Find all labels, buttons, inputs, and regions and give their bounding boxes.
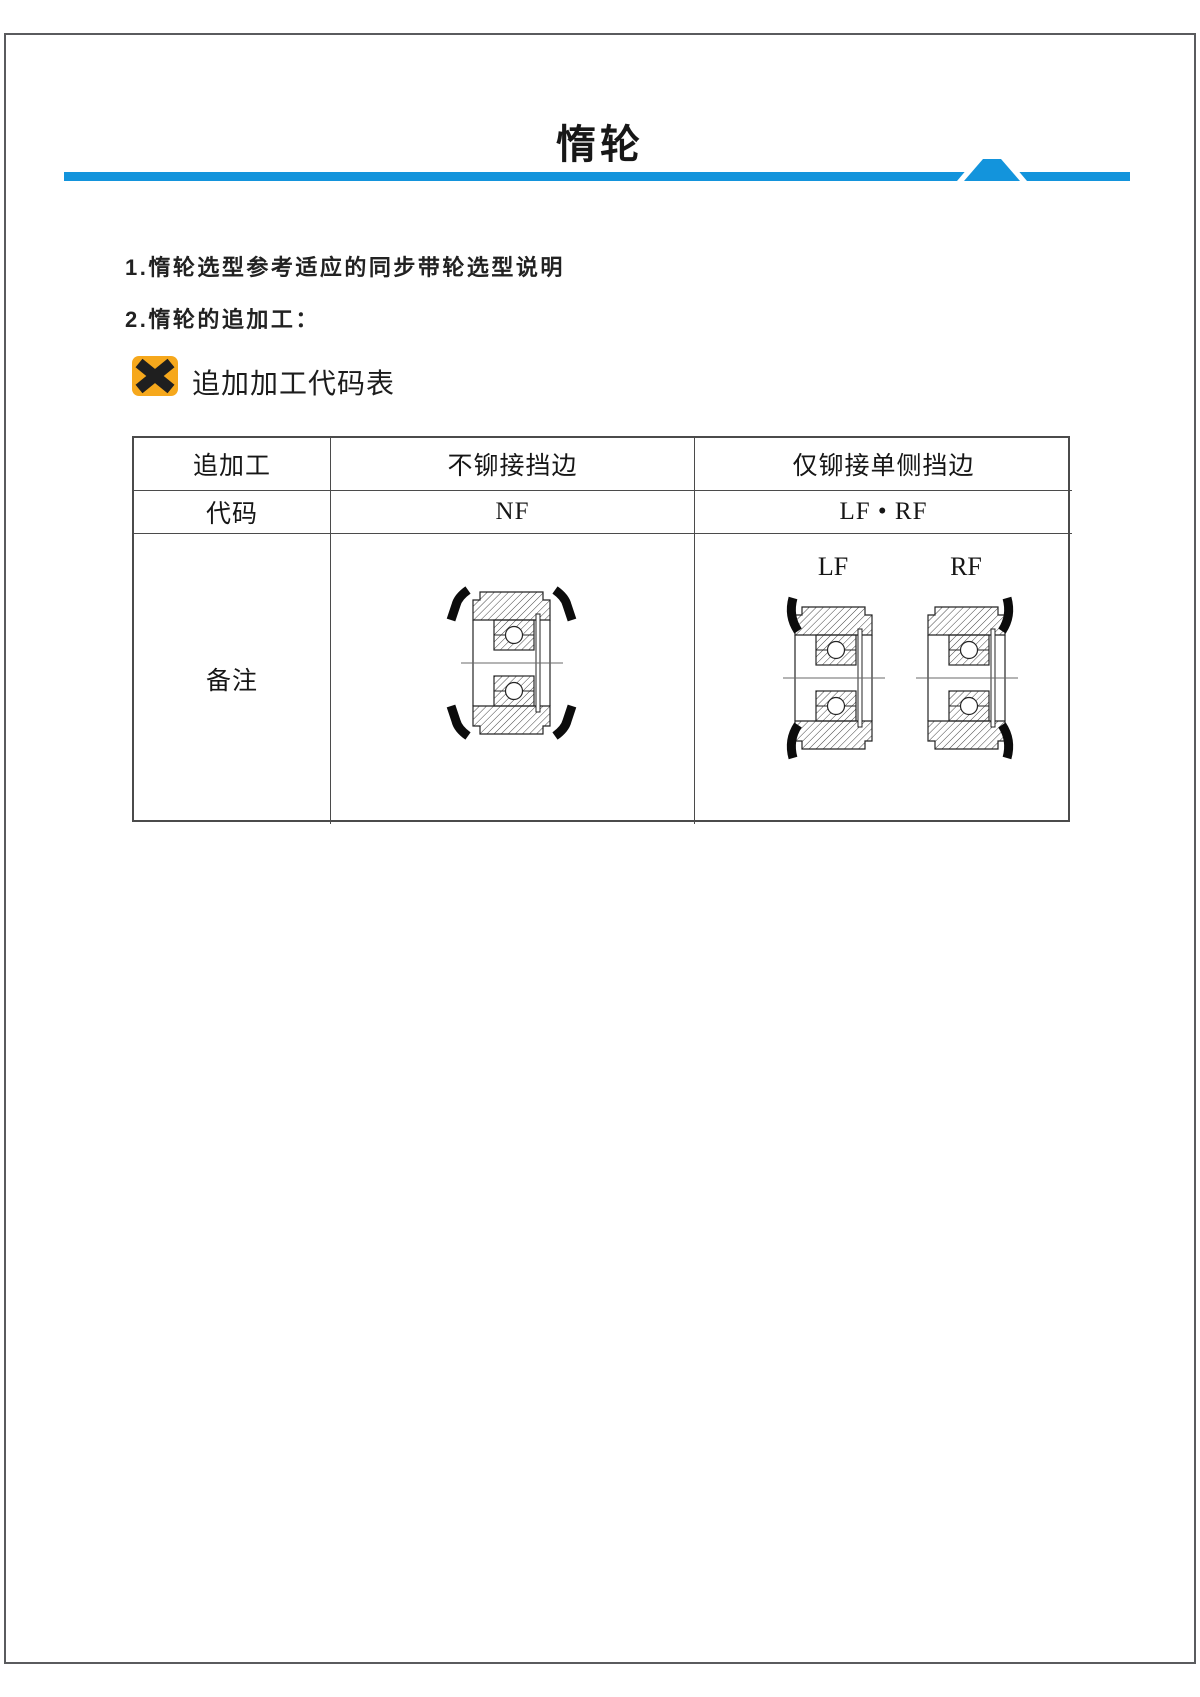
header-single-flange: 仅铆接单侧挡边 xyxy=(695,438,1072,491)
lf-diagram-label: LF xyxy=(803,552,863,582)
title-divider xyxy=(64,153,1130,181)
note-selection-reference: 1.惰轮选型参考适应的同步带轮选型说明 xyxy=(125,250,565,282)
catalog-page: 惰轮 1.惰轮选型参考适应的同步带轮选型说明 2.惰轮的追加工： 追加加工代码表… xyxy=(0,0,1200,1697)
rf-diagram-label: RF xyxy=(936,552,996,582)
header-no-flange: 不铆接挡边 xyxy=(331,438,695,491)
remark-row-label: 备注 xyxy=(134,534,331,824)
nf-pulley-diagram xyxy=(442,576,582,752)
code-table-caption: 追加加工代码表 xyxy=(192,362,395,402)
code-row-label: 代码 xyxy=(134,491,331,534)
x-mark-icon xyxy=(132,356,178,396)
header-addition: 追加工 xyxy=(134,438,331,491)
lf-pulley-diagram xyxy=(773,591,885,769)
note-additional-machining: 2.惰轮的追加工： xyxy=(125,302,320,334)
code-lf-rf: LF • RF xyxy=(695,491,1072,534)
code-nf: NF xyxy=(331,491,695,534)
rf-pulley-diagram xyxy=(915,591,1027,769)
